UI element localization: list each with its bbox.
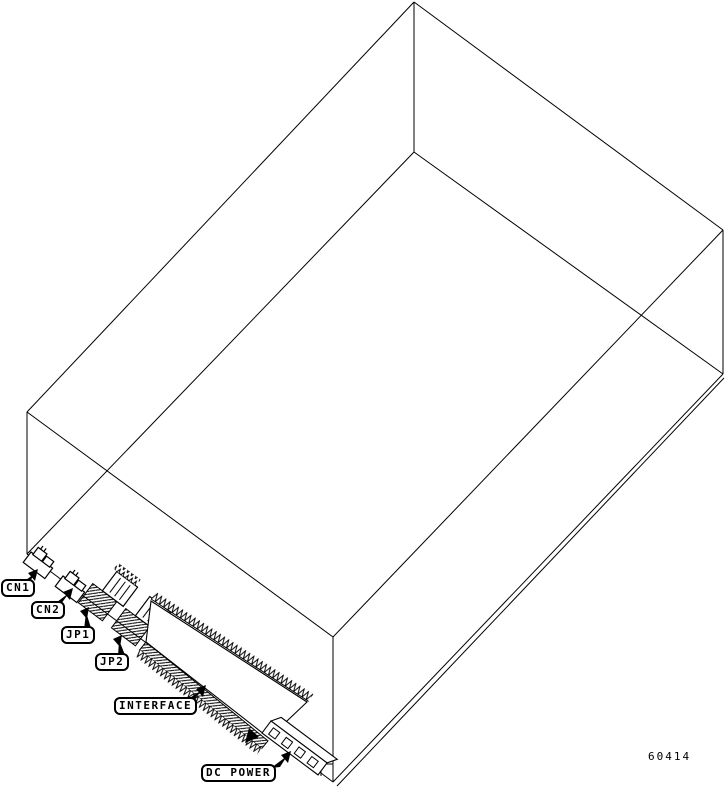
enclosure-wireframe: [27, 2, 724, 786]
figure-canvas: CN1 CN2 JP1 JP2 INTERFACE DC POWER 60414: [0, 0, 725, 789]
figure-part-number: 60414: [648, 750, 691, 763]
edge-bottomface-right: [414, 152, 723, 374]
edge-top-right: [414, 2, 723, 230]
interface-label: INTERFACE: [114, 697, 197, 715]
edge-front-right-top: [333, 230, 723, 637]
dc-power-label: DC POWER: [201, 764, 276, 782]
cn1-label: CN1: [1, 579, 35, 597]
edge-bottom-right-outer: [337, 378, 724, 786]
edge-bottomface-left: [27, 152, 414, 554]
edge-front-left-top: [27, 412, 333, 637]
edge-bottom-right: [333, 374, 723, 782]
cn2-label: CN2: [31, 601, 65, 619]
jp2-label: JP2: [95, 653, 129, 671]
jp1-label: JP1: [61, 626, 95, 644]
edge-top-left: [27, 2, 414, 412]
